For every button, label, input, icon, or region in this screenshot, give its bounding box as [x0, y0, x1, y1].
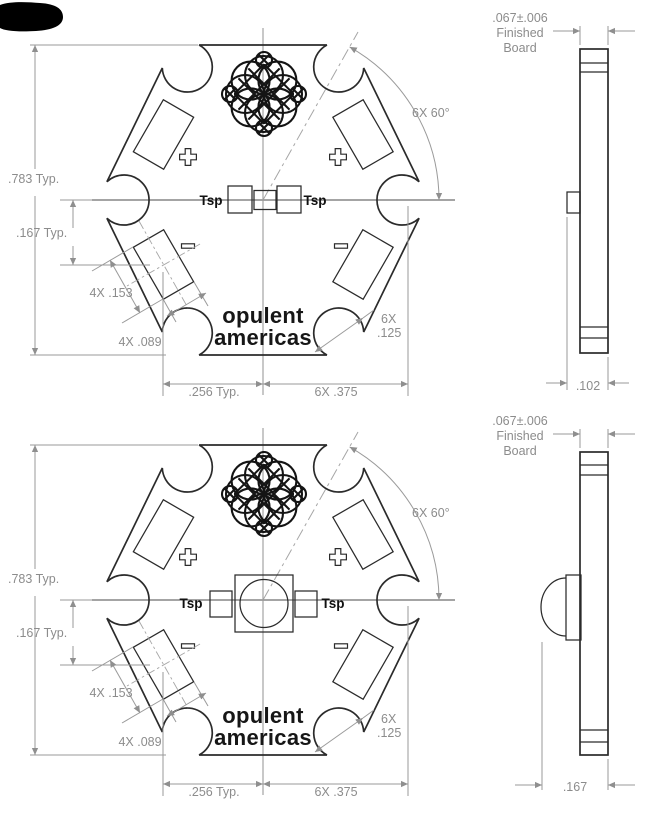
dim-point-distance: 6X .375 — [314, 385, 357, 399]
dim-overall-height: .783 Typ. — [8, 572, 59, 586]
pcb-technical-drawing: Tsp Tsp opulent americas .783 Typ. .167 … — [0, 0, 663, 821]
dim-board-thickness-l2: Finished — [496, 429, 543, 443]
logo-text-line2: americas — [214, 725, 312, 750]
dim-center-offset: .256 Typ. — [188, 385, 239, 399]
dim-pad-length: 4X .153 — [89, 286, 132, 300]
tsp-label-right: Tsp — [304, 193, 327, 208]
dim-notch-qty: 6X — [381, 712, 397, 726]
tsp-label-left: Tsp — [200, 193, 223, 208]
dim-overall-thickness: .102 — [576, 379, 600, 393]
logo-text-line2: americas — [214, 325, 312, 350]
dim-notch-size: .125 — [377, 726, 401, 740]
dim-overall-thickness: .167 — [563, 780, 587, 794]
dim-board-thickness-l3: Board — [503, 444, 536, 458]
dim-point-distance: 6X .375 — [314, 785, 357, 799]
top-view-drawing: Tsp Tsp opulent americas .783 Typ. .167 … — [8, 28, 455, 399]
board-edge-profile — [580, 452, 608, 755]
component-profile-flat — [567, 192, 580, 213]
redaction-mark — [0, 2, 63, 31]
dim-center-offset: .256 Typ. — [188, 785, 239, 799]
dim-board-thickness-l2: Finished — [496, 26, 543, 40]
dim-angle: 6X 60° — [412, 506, 450, 520]
tsp-label-right: Tsp — [322, 596, 345, 611]
bottom-view-drawing: Tsp Tsp opulent americas .783 Typ. .167 … — [8, 428, 455, 799]
side-view-top: .067±.006 Finished Board .102 — [492, 11, 635, 393]
side-view-bottom: .067±.006 Finished Board .167 — [492, 414, 635, 794]
dim-pad-width: 4X .089 — [118, 335, 161, 349]
dim-pad-length: 4X .153 — [89, 686, 132, 700]
component-profile-base — [566, 575, 581, 640]
dim-board-thickness-l1: .067±.006 — [492, 11, 548, 25]
dim-angle: 6X 60° — [412, 106, 450, 120]
dim-pad-offset: .167 Typ. — [16, 226, 67, 240]
dim-pad-width: 4X .089 — [118, 735, 161, 749]
dim-pad-offset: .167 Typ. — [16, 626, 67, 640]
dim-board-thickness-l1: .067±.006 — [492, 414, 548, 428]
center-component-flat — [228, 186, 301, 213]
dim-overall-height: .783 Typ. — [8, 172, 59, 186]
dim-board-thickness-l3: Board — [503, 41, 536, 55]
dim-notch-size: .125 — [377, 326, 401, 340]
tsp-label-left: Tsp — [180, 596, 203, 611]
dome-lens-profile — [541, 578, 566, 636]
dim-notch-qty: 6X — [381, 312, 397, 326]
board-edge-profile — [580, 49, 608, 353]
